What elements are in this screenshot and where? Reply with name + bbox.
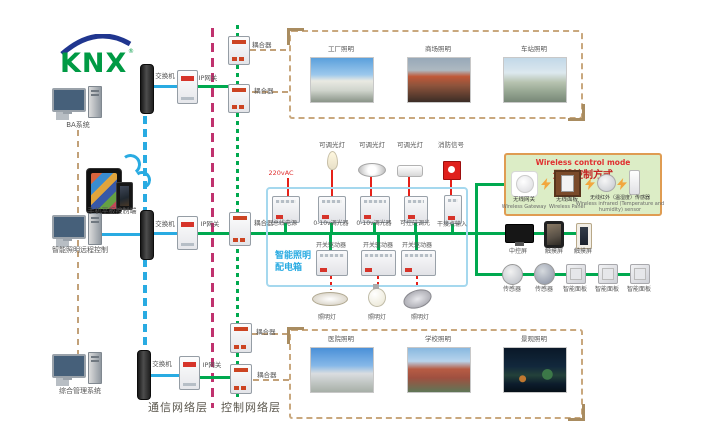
coupler-icon (230, 323, 252, 353)
factory-lighting-photo (310, 57, 374, 103)
knx-lighting-system-diagram: KNX ® BA系统 手机平板控制端 智能照明远程控制 综合管理系统 交换机 交… (0, 0, 715, 443)
module-label: 干接点输入 (437, 222, 467, 229)
cabinet-title-line2: 配电箱 (275, 263, 302, 275)
knx-bus-line (564, 232, 576, 235)
dimmer-module-icon (318, 196, 346, 223)
monitor-icon (52, 88, 86, 112)
coupler-icon (228, 84, 250, 113)
network-switch-icon (140, 64, 154, 114)
wireless-gateway-label-zh: 无线网关 (513, 197, 535, 203)
dimmer-module-icon (360, 196, 390, 223)
photo-label: 学校照明 (425, 336, 451, 343)
candle-lamp-icon (327, 151, 338, 170)
photo-label: 景观照明 (521, 336, 547, 343)
load-label: 消防信号 (438, 142, 464, 149)
photo-label: 工厂照明 (328, 46, 354, 53)
coupler-label: 耦合器 (257, 372, 277, 379)
monitor-icon (52, 215, 86, 239)
landscape-lighting-photo (503, 347, 567, 393)
smart-panel-icon (598, 264, 618, 284)
module-label: 总线电源 (273, 221, 297, 228)
ba-system-computer-icon (52, 86, 102, 120)
wireless-gateway-label: 无线网关 Wireless Gateway (502, 197, 547, 210)
actuator-label: 开关驱动器 (402, 243, 432, 250)
tower-icon (88, 213, 102, 245)
mall-lighting-photo (407, 57, 471, 103)
management-computer-icon (52, 352, 102, 386)
coupler-icon (230, 364, 252, 394)
wireless-infrared-sensor-icon (597, 174, 616, 192)
switch-label: 交换机 (155, 73, 175, 80)
central-screen-icon (505, 224, 534, 243)
wireless-sensor-label: 无线红外（温湿度）传感器 Wireless infrared (Temperat… (576, 195, 664, 213)
panel-lamp-icon (397, 165, 423, 177)
wireless-gateway-icon (511, 171, 538, 197)
bulb-lamp-icon (368, 288, 386, 307)
ethernet-line (100, 233, 141, 236)
hospital-lighting-photo (310, 347, 374, 393)
ceiling-lamp-icon (312, 292, 348, 306)
tower-icon (88, 86, 102, 118)
panel-label: 智能面板 (563, 287, 587, 294)
comm-layer-label: 通信网络层 (148, 399, 208, 415)
switch-actuator-icon (401, 250, 436, 276)
module-label: 0-10v调光器 (356, 221, 391, 228)
downlight-icon (358, 163, 386, 177)
ba-system-label: BA系统 (66, 122, 90, 130)
registered-mark-icon: ® (128, 48, 134, 55)
wireless-panel-icon (554, 170, 581, 197)
ctrl-layer-label: 控制网络层 (221, 399, 281, 415)
photo-label: 车站照明 (521, 46, 547, 53)
touch-screen-icon (576, 223, 592, 249)
switch-label: 交换机 (152, 361, 172, 368)
coupler-icon (229, 212, 251, 246)
knx-bus-line (584, 273, 598, 276)
management-system-label: 综合管理系统 (59, 388, 101, 396)
knx-bus-line (616, 273, 630, 276)
knx-bus-trunk-line (475, 183, 478, 275)
knx-bus-line (475, 273, 504, 276)
switch-actuator-icon (361, 250, 396, 276)
frame-connector-line (253, 379, 289, 381)
sensor-label: 传感器 (535, 287, 553, 294)
network-switch-icon (140, 210, 154, 260)
actuator-label: 开关驱动器 (363, 243, 393, 250)
lamp-label: 照明灯 (318, 315, 336, 322)
screen-label: 触摸屏 (574, 249, 592, 256)
module-label: 可控硅调光 (400, 221, 430, 228)
ip-gateway-icon (177, 70, 198, 104)
mobile-control-label: 手机平板控制端 (88, 208, 137, 216)
sensor-label: 传感器 (503, 287, 521, 294)
sensor-icon (534, 263, 555, 285)
bus-power-module-icon (272, 196, 300, 223)
coupler-label: 耦合器 (254, 220, 274, 227)
ip-gateway-label: IP网关 (199, 75, 218, 82)
station-lighting-photo (503, 57, 567, 103)
school-lighting-photo (407, 347, 471, 393)
coupler-label: 耦合器 (256, 329, 276, 336)
screen-label: 中控屏 (509, 249, 527, 256)
smart-panel-icon (566, 264, 586, 284)
sensor-icon (502, 264, 523, 285)
lamp-label: 照明灯 (411, 315, 429, 322)
load-label: 可调光灯 (319, 142, 345, 149)
load-label: 可调光灯 (359, 142, 385, 149)
network-switch-icon (137, 350, 151, 400)
actuator-label: 开关驱动器 (316, 243, 346, 250)
wireless-gateway-label-en: Wireless Gateway (502, 204, 547, 210)
temperature-humidity-sensor-icon (629, 170, 640, 195)
wireless-sensor-label-en2: humidity) sensor (576, 207, 664, 213)
triac-dimmer-module-icon (404, 196, 428, 223)
ethernet-line (152, 85, 178, 88)
photo-label: 商场照明 (425, 46, 451, 53)
coupler-icon (228, 36, 250, 65)
mains-power-label: 220vAC (268, 170, 293, 177)
load-label: 可调光灯 (397, 142, 423, 149)
dry-contact-module-icon (444, 195, 462, 224)
knx-logo: KNX (60, 48, 127, 79)
frame-connector-line (250, 49, 289, 51)
coupler-label: 耦合器 (254, 88, 274, 95)
knx-bus-line (478, 183, 506, 186)
wifi-icon (132, 170, 152, 190)
ip-gateway-icon (177, 216, 198, 250)
ethernet-line (152, 232, 178, 235)
wireless-panel-label-zh: 无线面板 (556, 197, 578, 203)
smart-panel-icon (630, 264, 650, 284)
switch-actuator-icon (316, 250, 348, 276)
spot-lamp-icon (401, 286, 434, 312)
fire-alarm-icon (443, 161, 461, 180)
touch-screen-icon (544, 221, 564, 248)
lamp-label: 照明灯 (368, 315, 386, 322)
remote-control-label: 智能照明远程控制 (52, 247, 108, 255)
ethernet-line (149, 374, 180, 377)
panel-label: 智能面板 (595, 287, 619, 294)
switch-label: 交换机 (155, 221, 175, 228)
cabinet-title-line1: 智能照明 (275, 251, 311, 263)
panel-label: 智能面板 (627, 287, 651, 294)
tower-icon (88, 352, 102, 384)
ip-gateway-icon (179, 356, 200, 390)
module-label: 0-10v调光器 (313, 221, 348, 228)
coupler-label: 耦合器 (252, 42, 272, 49)
screen-label: 触摸屏 (545, 249, 563, 256)
monitor-icon (52, 354, 86, 378)
remote-control-computer-icon (52, 213, 102, 247)
phone-icon (116, 182, 133, 210)
photo-label: 医院照明 (328, 336, 354, 343)
ip-gateway-label: IP网关 (201, 221, 220, 228)
ip-gateway-label: IP网关 (203, 362, 222, 369)
